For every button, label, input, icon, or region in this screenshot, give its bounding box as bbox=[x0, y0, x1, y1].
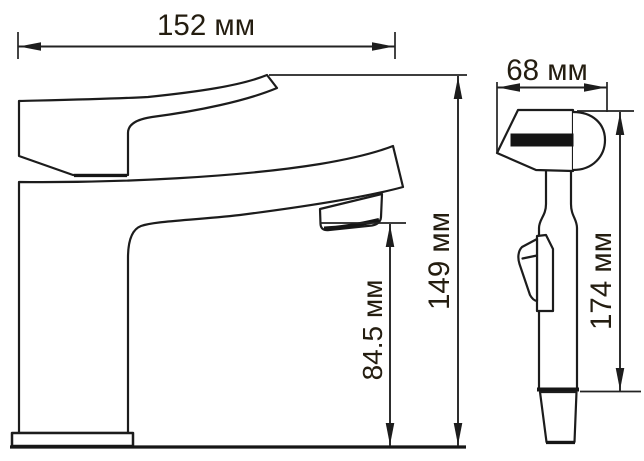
arrowhead-bottom bbox=[616, 368, 625, 390]
dimension-label-spout-height: 84.5 мм bbox=[357, 280, 388, 381]
faucet-handle-outline bbox=[19, 75, 277, 175]
arrowhead-top bbox=[386, 225, 395, 247]
technical-drawing-canvas: 152 мм 149 мм 84.5 мм 68 мм bbox=[0, 0, 644, 461]
faucet-body-spout-outline bbox=[19, 146, 403, 433]
dimension-front-width: 152 мм bbox=[18, 9, 395, 59]
front-view bbox=[10, 75, 466, 447]
arrowhead-left bbox=[19, 42, 41, 51]
arrowhead-bottom bbox=[454, 423, 463, 445]
dimension-front-total-height: 149 мм bbox=[269, 75, 467, 446]
side-tailpiece bbox=[540, 392, 577, 442]
arrowhead-right bbox=[372, 42, 394, 51]
side-head-dark-band bbox=[511, 134, 573, 146]
dimension-label-side-depth: 68 мм bbox=[506, 54, 588, 87]
dimension-label-side-height: 174 мм bbox=[585, 232, 618, 330]
dimension-spout-height: 84.5 мм bbox=[320, 223, 406, 446]
side-lever-blade bbox=[518, 239, 537, 301]
drawing-svg: 152 мм 149 мм 84.5 мм 68 мм bbox=[0, 0, 644, 461]
side-lever-body bbox=[537, 235, 553, 311]
dimension-label-front-total-height: 149 мм bbox=[423, 212, 456, 310]
dimension-label-front-width: 152 мм bbox=[157, 9, 255, 42]
arrowhead-bottom bbox=[386, 423, 395, 445]
arrowhead-top bbox=[454, 77, 463, 99]
arrowhead-top bbox=[616, 113, 625, 135]
side-column-right-edge bbox=[571, 171, 577, 388]
base-flange bbox=[12, 433, 133, 446]
side-end-cap bbox=[573, 112, 605, 170]
